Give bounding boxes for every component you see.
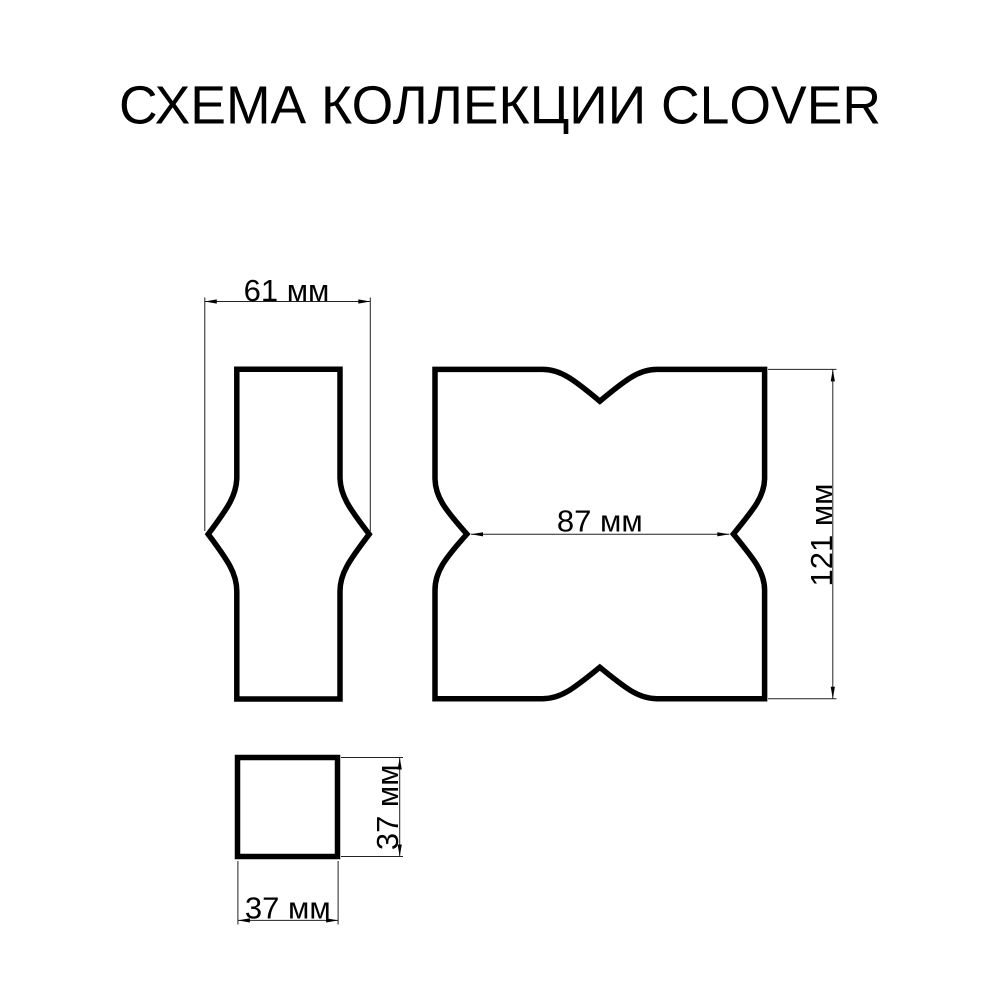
svg-text:87 мм: 87 мм bbox=[557, 503, 643, 538]
svg-text:СХЕМА КОЛЛЕКЦИИ CLOVER: СХЕМА КОЛЛЕКЦИИ CLOVER bbox=[119, 76, 881, 135]
svg-text:37 мм: 37 мм bbox=[245, 890, 331, 925]
svg-text:61 мм: 61 мм bbox=[244, 273, 330, 308]
svg-text:37 мм: 37 мм bbox=[370, 764, 405, 850]
svg-text:121 мм: 121 мм bbox=[804, 484, 839, 587]
